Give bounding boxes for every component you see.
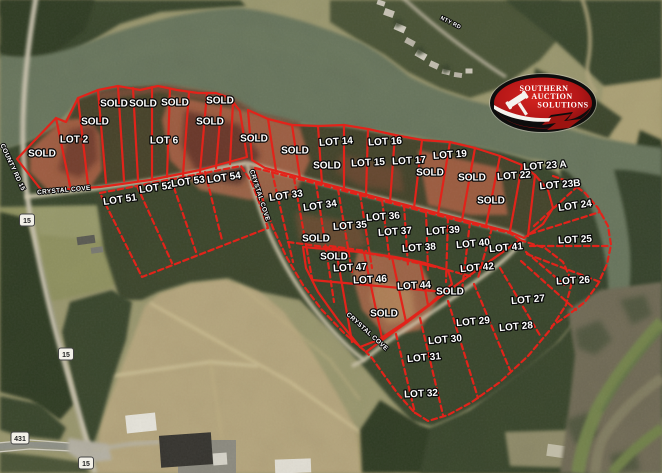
svg-text:LOT 2: LOT 2: [60, 135, 89, 146]
svg-text:LOT 16: LOT 16: [368, 136, 403, 149]
svg-text:SOLD: SOLD: [458, 173, 486, 184]
svg-text:LOT 17: LOT 17: [392, 155, 427, 168]
svg-text:SOLD: SOLD: [320, 252, 348, 263]
svg-text:SOLD: SOLD: [206, 96, 234, 107]
svg-text:LOT 44: LOT 44: [397, 280, 432, 293]
svg-text:LOT 25: LOT 25: [558, 234, 593, 247]
svg-text:SOLUTIONS: SOLUTIONS: [537, 101, 588, 110]
svg-text:SOLD: SOLD: [416, 168, 444, 179]
svg-text:431: 431: [14, 436, 26, 443]
svg-text:LOT 15: LOT 15: [351, 157, 386, 170]
svg-text:15: 15: [62, 352, 70, 359]
svg-text:SOLD: SOLD: [370, 309, 398, 320]
svg-text:15: 15: [23, 218, 31, 225]
svg-text:SOLD: SOLD: [436, 287, 464, 298]
svg-text:LOT 6: LOT 6: [150, 136, 179, 147]
svg-text:SOLD: SOLD: [281, 146, 309, 157]
svg-text:LOT 46: LOT 46: [353, 274, 388, 287]
svg-text:LOT 32: LOT 32: [404, 388, 439, 401]
svg-text:SOLD: SOLD: [161, 98, 189, 109]
svg-text:SOLD: SOLD: [477, 196, 505, 207]
svg-text:SOLD: SOLD: [313, 161, 341, 172]
svg-text:15: 15: [82, 461, 90, 468]
svg-text:SOLD: SOLD: [28, 149, 56, 160]
svg-text:SOLD: SOLD: [302, 234, 330, 245]
svg-text:SOLD: SOLD: [196, 117, 224, 128]
svg-text:SOLD: SOLD: [129, 99, 157, 110]
svg-text:SOLD: SOLD: [240, 134, 268, 145]
svg-text:SOLD: SOLD: [100, 99, 128, 110]
svg-text:SOLD: SOLD: [81, 117, 109, 128]
svg-text:LOT 47: LOT 47: [333, 262, 368, 275]
svg-text:LOT 26: LOT 26: [556, 275, 591, 288]
